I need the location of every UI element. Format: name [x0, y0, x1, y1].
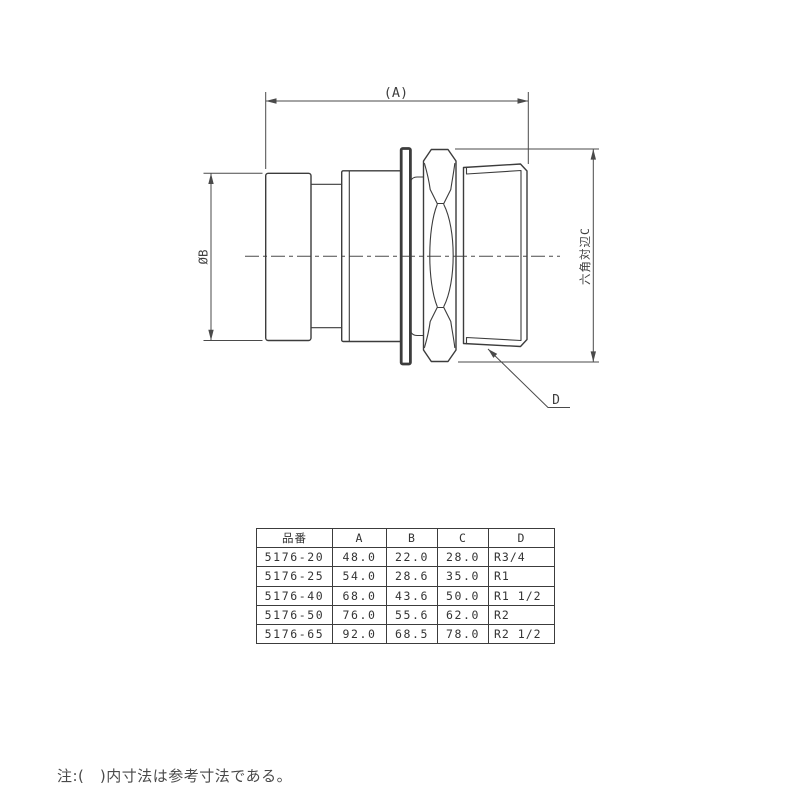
leader-d: D — [488, 349, 570, 408]
cell-a: 48.0 — [333, 548, 387, 567]
header-b: B — [387, 529, 438, 548]
arrowhead — [208, 330, 213, 341]
cell-c: 78.0 — [438, 624, 489, 643]
dim-b-label: ØB — [196, 249, 211, 264]
header-d: D — [489, 529, 555, 548]
drawing-sheet: { "drawing": { "dim_a": "(A)", "dim_b": … — [0, 0, 800, 800]
cell-b: 28.6 — [387, 567, 438, 586]
table-row: 5176-20 48.0 22.0 28.0 R3/4 — [257, 548, 555, 567]
cell-d: R2 1/2 — [489, 624, 555, 643]
cell-a: 54.0 — [333, 567, 387, 586]
dimension-b: ØB — [196, 173, 263, 340]
fitting-drawing: (A) ØB 六角対辺C — [0, 0, 800, 480]
header-a: A — [333, 529, 387, 548]
dim-a-label: (A) — [384, 85, 408, 101]
arrowhead — [591, 149, 596, 160]
cell-d: R1 1/2 — [489, 586, 555, 605]
arrowhead — [208, 173, 213, 184]
reference-note: 注:( )内寸法は参考寸法である。 — [57, 765, 292, 786]
table-row: 5176-40 68.0 43.6 50.0 R1 1/2 — [257, 586, 555, 605]
table-header-row: 品番 A B C D — [257, 529, 555, 548]
dimension-table: 品番 A B C D 5176-20 48.0 22.0 28.0 R3/4 5… — [256, 528, 555, 644]
cell-part-number: 5176-65 — [257, 624, 333, 643]
cell-c: 62.0 — [438, 605, 489, 624]
cell-d: R2 — [489, 605, 555, 624]
hex-top-facet — [425, 164, 455, 204]
hex-facet-curve — [430, 205, 437, 307]
dim-c-label: 六角対辺C — [578, 227, 592, 285]
arrowhead — [266, 98, 277, 103]
threaded-end — [464, 164, 528, 347]
cell-b: 68.5 — [387, 624, 438, 643]
hex-facet-curve — [444, 205, 453, 307]
cell-part-number: 5176-50 — [257, 605, 333, 624]
cell-a: 68.0 — [333, 586, 387, 605]
cell-c: 28.0 — [438, 548, 489, 567]
cell-part-number: 5176-40 — [257, 586, 333, 605]
header-c: C — [438, 529, 489, 548]
cell-d: R1 — [489, 567, 555, 586]
header-part-number: 品番 — [257, 529, 333, 548]
socket-end — [266, 173, 311, 340]
cell-b: 55.6 — [387, 605, 438, 624]
dim-d-label: D — [552, 393, 560, 408]
cell-b: 22.0 — [387, 548, 438, 567]
cell-b: 43.6 — [387, 586, 438, 605]
cell-d: R3/4 — [489, 548, 555, 567]
table-row: 5176-65 92.0 68.5 78.0 R2 1/2 — [257, 624, 555, 643]
arrowhead — [591, 351, 596, 362]
cell-a: 92.0 — [333, 624, 387, 643]
table-row: 5176-25 54.0 28.6 35.0 R1 — [257, 567, 555, 586]
cell-a: 76.0 — [333, 605, 387, 624]
table-row: 5176-50 76.0 55.6 62.0 R2 — [257, 605, 555, 624]
cell-c: 50.0 — [438, 586, 489, 605]
hex-bottom-facet — [425, 308, 455, 348]
cell-c: 35.0 — [438, 567, 489, 586]
cell-part-number: 5176-20 — [257, 548, 333, 567]
cell-part-number: 5176-25 — [257, 567, 333, 586]
hex-nut — [424, 150, 457, 362]
dimension-a: (A) — [266, 85, 529, 169]
thread-lines — [467, 167, 522, 343]
thread-outline — [464, 164, 528, 347]
arrowhead — [518, 98, 529, 103]
